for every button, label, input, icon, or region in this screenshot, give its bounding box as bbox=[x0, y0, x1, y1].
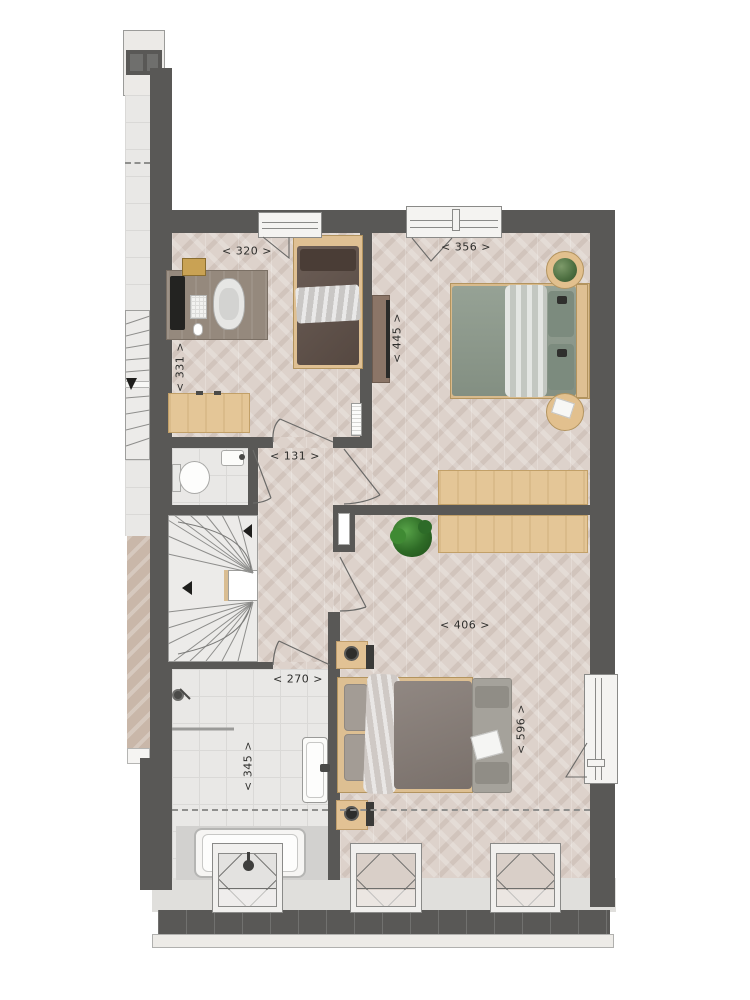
stair-landing-edge bbox=[224, 570, 228, 601]
window-handle bbox=[587, 759, 605, 767]
window-bedroom1 bbox=[258, 212, 322, 238]
dimension-bathroom-width: < 270 > bbox=[273, 673, 323, 686]
master-bed-duvet bbox=[394, 681, 472, 789]
facade-panel-strip bbox=[158, 910, 610, 934]
mouse bbox=[193, 323, 203, 336]
roof-window-sill bbox=[497, 888, 554, 889]
window-frame-line bbox=[262, 228, 318, 229]
bedroom1-doorway-floor bbox=[273, 437, 333, 448]
neighbor-stair-landing bbox=[125, 381, 150, 388]
wardrobe-bedroom2 bbox=[438, 470, 588, 505]
desk-caddy bbox=[182, 258, 206, 276]
dimension-master-width: < 406 > bbox=[440, 619, 490, 632]
facade-base-strip bbox=[152, 934, 614, 948]
radiator bbox=[351, 403, 362, 436]
bedroom2-doorway-floor bbox=[333, 448, 372, 505]
roof-window-sill bbox=[219, 888, 276, 889]
wall-top bbox=[150, 210, 615, 233]
dimension-master-depth: < 596 > bbox=[515, 704, 528, 754]
neighbor-chimney-flue bbox=[130, 54, 143, 71]
dimension-bedroom1-depth: < 331 > bbox=[174, 342, 187, 392]
plant-icon bbox=[553, 258, 577, 282]
window-mullion bbox=[452, 209, 460, 231]
roof-window-glass bbox=[496, 853, 555, 907]
stair-landing bbox=[228, 570, 258, 601]
neighbor-dashed-line bbox=[125, 162, 150, 164]
wall-bedroom2-master-divider bbox=[355, 505, 615, 515]
neighbor-floor-wood bbox=[127, 536, 150, 748]
office-chair-seat bbox=[219, 288, 239, 320]
wall-right bbox=[590, 210, 615, 907]
wardrobe-master bbox=[438, 515, 588, 553]
faucet-spout bbox=[247, 852, 250, 862]
plant-leaf bbox=[390, 528, 406, 544]
roof-window bbox=[350, 843, 422, 913]
dresser-handle bbox=[214, 391, 221, 395]
headboard bbox=[576, 284, 588, 398]
roof-window-shade bbox=[357, 890, 415, 906]
single-bed-blanket bbox=[295, 284, 361, 323]
wall-wc-bottom bbox=[150, 505, 258, 515]
tv-screen bbox=[366, 802, 374, 826]
faucet-icon bbox=[320, 764, 330, 772]
wall-hall-top-b bbox=[333, 437, 369, 448]
neighbor-floor-tile bbox=[125, 95, 150, 310]
roof-window bbox=[490, 843, 561, 913]
window-master bbox=[584, 674, 618, 784]
ceiling-height-line-bath bbox=[172, 809, 328, 811]
roof-window-glass bbox=[356, 853, 416, 907]
ceiling-height-line-master bbox=[340, 809, 590, 811]
bathroom-doorway-floor bbox=[273, 662, 330, 669]
lamp-icon bbox=[344, 646, 359, 661]
plant-leaf bbox=[418, 520, 432, 534]
roof-window-shade bbox=[497, 890, 554, 906]
hallway-floor bbox=[258, 448, 333, 662]
single-bed-pillow bbox=[300, 249, 356, 271]
roof-window-shade bbox=[219, 890, 276, 906]
shaft-niche bbox=[338, 513, 350, 545]
roof-window-sill bbox=[357, 888, 415, 889]
dimension-bedroom2-depth: < 445 > bbox=[391, 313, 404, 363]
neighbor-landing-tile bbox=[125, 460, 150, 536]
dimension-bathroom-depth: < 345 > bbox=[242, 741, 255, 791]
dimension-bedroom1-width: < 320 > bbox=[222, 245, 272, 258]
wall-bathroom-top bbox=[150, 662, 273, 669]
wall-hall-top-a bbox=[150, 437, 273, 448]
toilet bbox=[179, 461, 210, 494]
pillow-clip bbox=[557, 349, 567, 357]
party-wall-left bbox=[150, 68, 172, 890]
tv-screen bbox=[366, 645, 374, 669]
pillow-clip bbox=[557, 296, 567, 304]
dimension-bedroom2-width: < 356 > bbox=[441, 241, 491, 254]
wall-wc-right bbox=[248, 448, 258, 505]
dimension-hallway-width: < 131 > bbox=[270, 450, 320, 463]
faucet-icon bbox=[239, 454, 245, 460]
window-frame-line bbox=[262, 222, 318, 223]
monitor bbox=[170, 276, 185, 330]
double-bed-green-blanket bbox=[505, 285, 547, 397]
tv-screen bbox=[386, 300, 390, 378]
window-bedroom2 bbox=[406, 206, 502, 238]
dresser-handle bbox=[196, 391, 203, 395]
floor-plan: < 320 > < 331 > < 356 > < 445 > < 131 > … bbox=[0, 0, 750, 1000]
bench-cushion bbox=[475, 686, 509, 708]
wall-left-lower bbox=[140, 758, 150, 890]
shower-head-icon bbox=[172, 689, 184, 701]
keyboard bbox=[190, 295, 207, 319]
dresser bbox=[168, 393, 250, 433]
bench-cushion bbox=[475, 762, 509, 784]
